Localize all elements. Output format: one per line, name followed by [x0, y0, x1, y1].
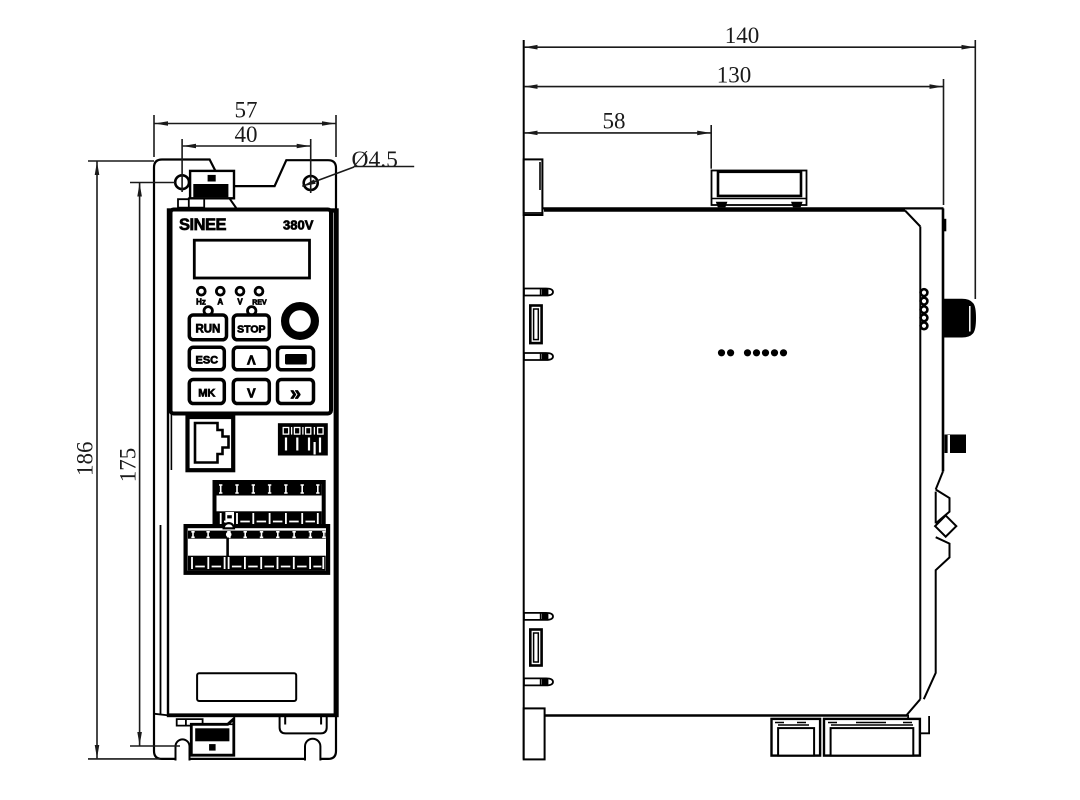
- svg-text:A: A: [217, 298, 223, 307]
- svg-text:Λ: Λ: [247, 353, 256, 368]
- svg-text:RUN: RUN: [195, 324, 220, 336]
- svg-text:V: V: [247, 386, 256, 401]
- svg-text:57: 57: [235, 98, 258, 123]
- svg-text:ESC: ESC: [195, 355, 218, 367]
- svg-text:V: V: [237, 298, 243, 307]
- svg-text:Hz: Hz: [196, 298, 206, 307]
- svg-text:Ø4.5: Ø4.5: [352, 147, 398, 173]
- svg-text:186: 186: [73, 441, 98, 476]
- svg-text:STOP: STOP: [237, 324, 265, 336]
- svg-text:40: 40: [235, 122, 258, 147]
- svg-text:130: 130: [717, 63, 752, 88]
- svg-text:SINEE: SINEE: [179, 216, 227, 234]
- svg-text:380V: 380V: [283, 218, 314, 233]
- svg-text:58: 58: [603, 109, 626, 134]
- svg-text:140: 140: [725, 23, 760, 48]
- svg-text:MK: MK: [198, 388, 215, 400]
- svg-text:REV: REV: [252, 300, 267, 307]
- svg-text:175: 175: [115, 448, 140, 483]
- svg-text:»: »: [290, 383, 301, 405]
